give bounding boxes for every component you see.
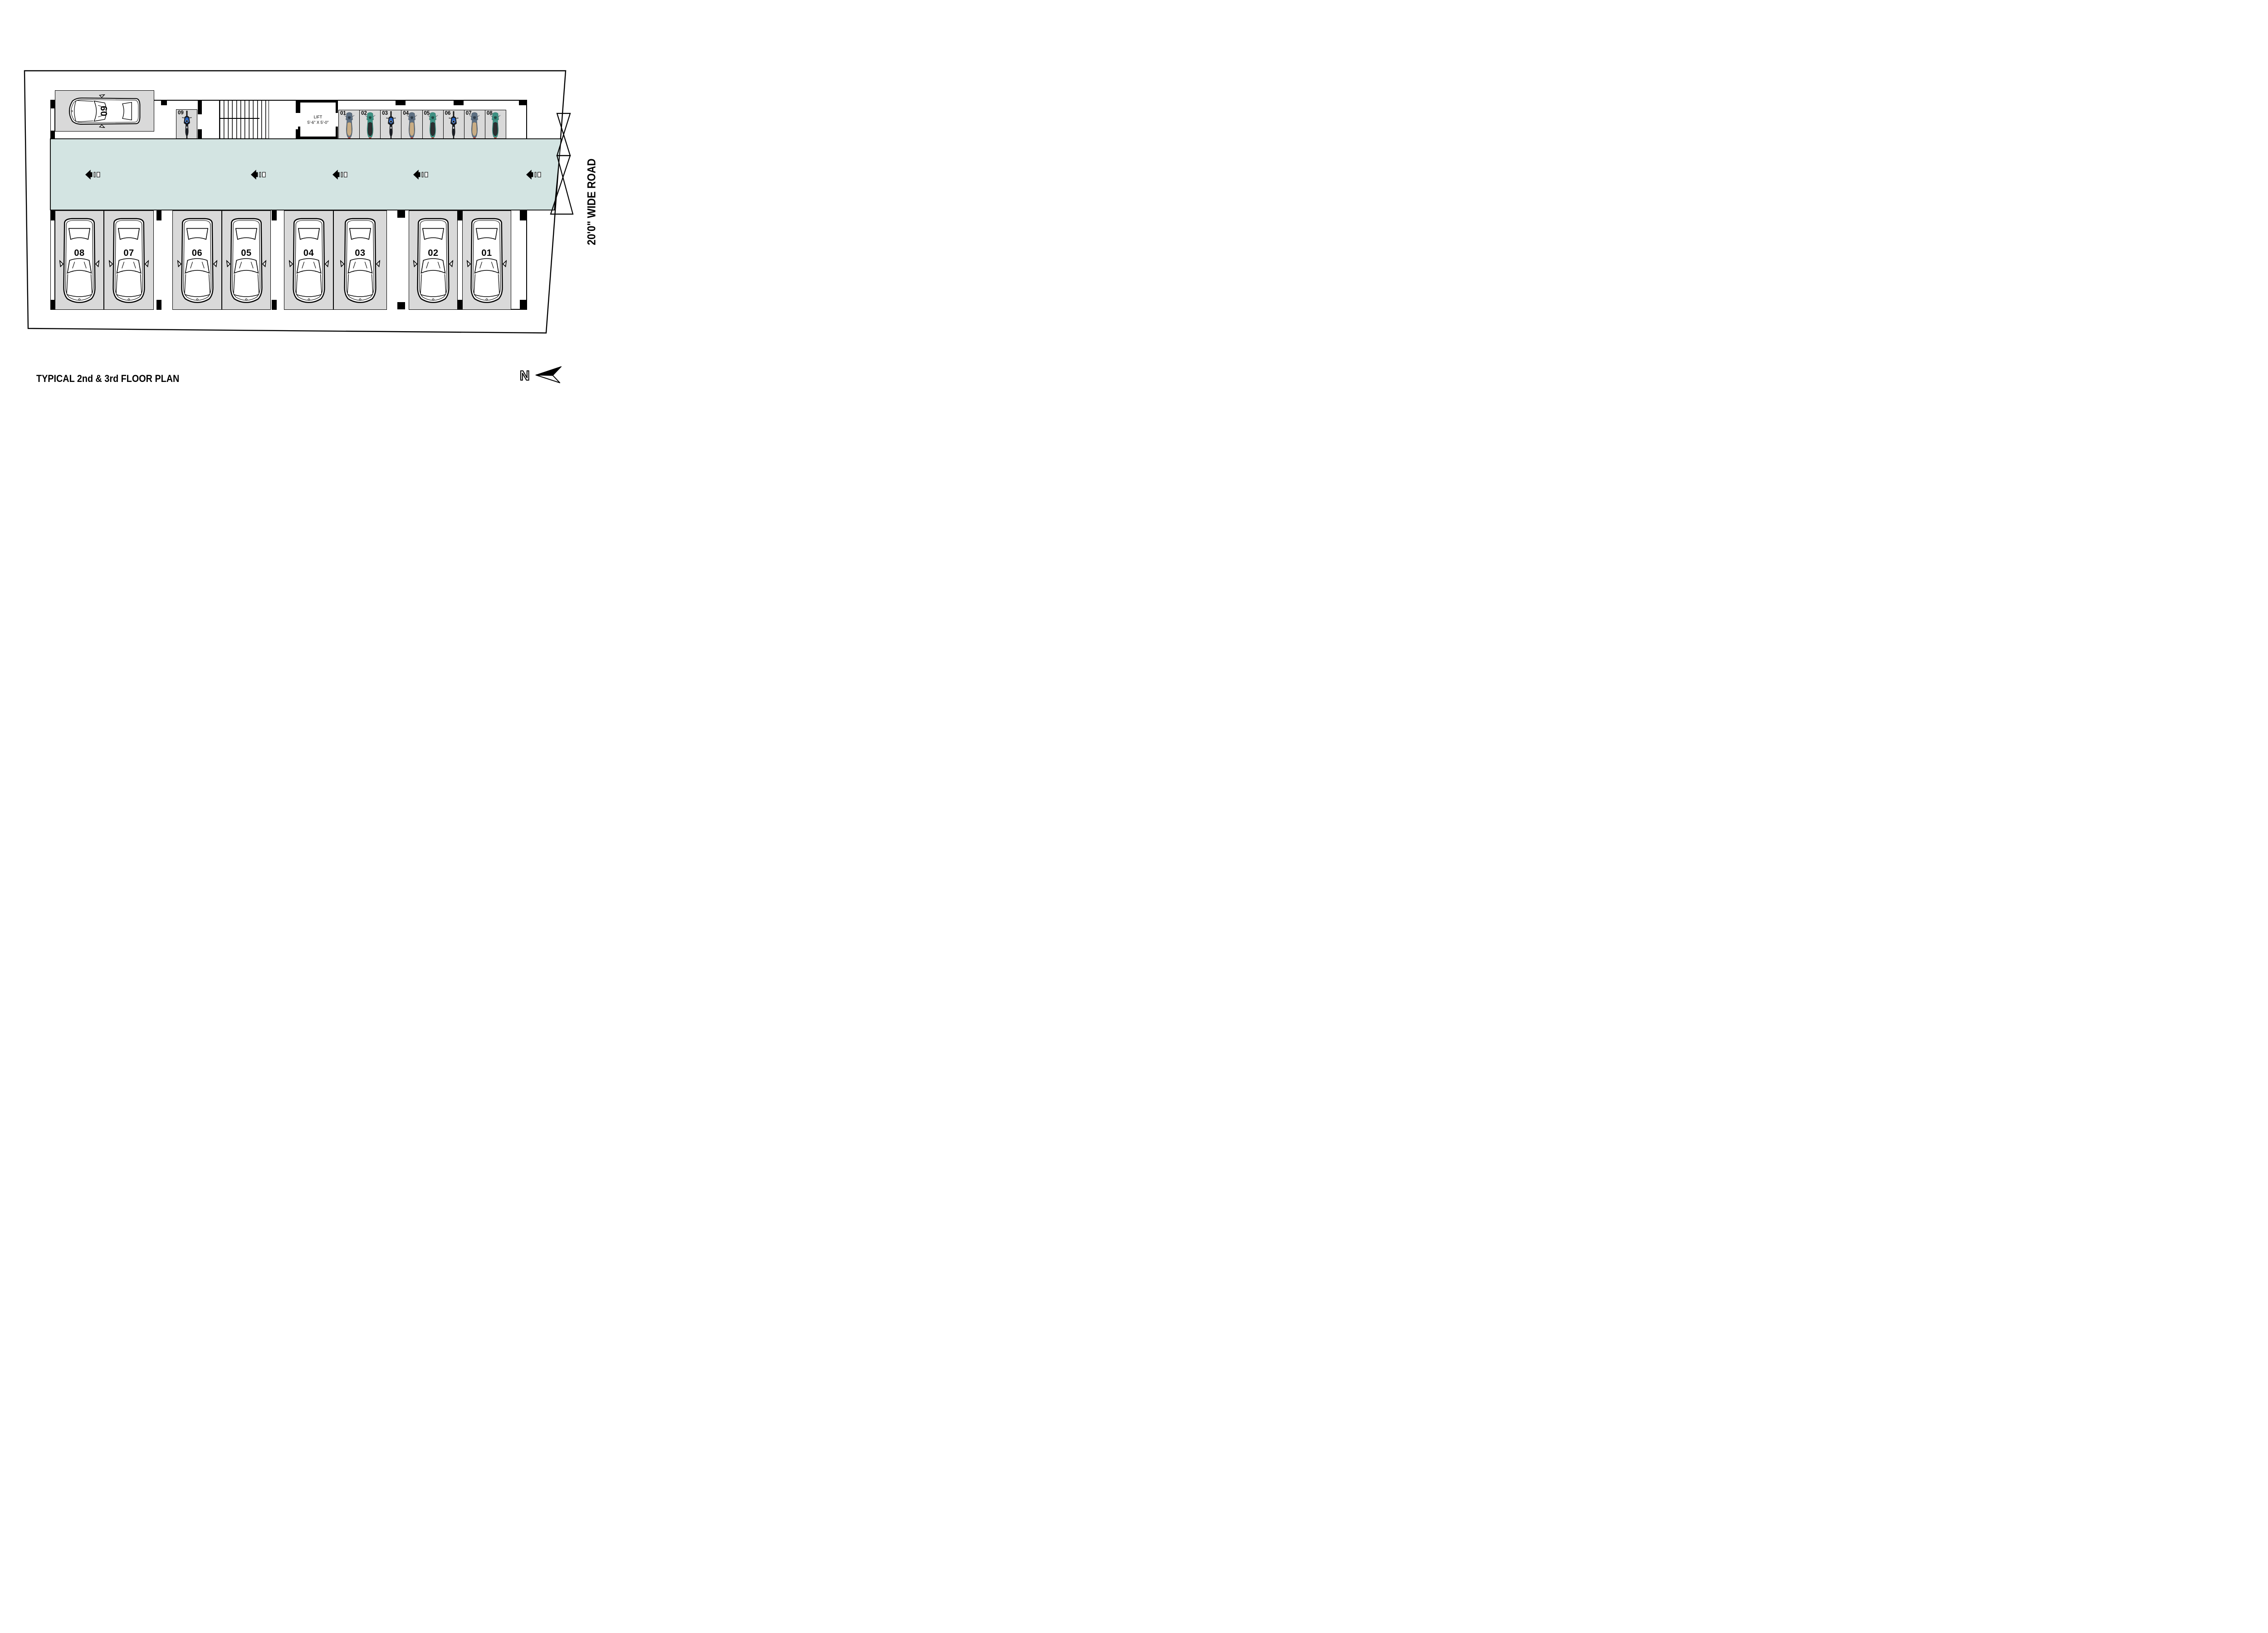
bike-stall-07: 07	[464, 110, 485, 138]
car-stall-number: 03	[334, 248, 386, 259]
structural-column	[156, 210, 161, 220]
structural-column	[50, 131, 55, 139]
bike-stall-02: 02	[359, 110, 380, 138]
structural-column	[396, 100, 406, 105]
stair-left-wall	[198, 129, 202, 139]
structural-column	[161, 100, 167, 105]
stair-landing-line	[220, 118, 259, 119]
bike-stall-04: 04	[401, 110, 422, 138]
structural-column	[50, 300, 55, 310]
car-stall-02: 02	[409, 210, 458, 310]
page-title: TYPICAL 2nd & 3rd FLOOR PLAN	[36, 373, 179, 385]
staircase	[219, 100, 269, 139]
bike-stall-05: 05	[422, 110, 443, 138]
structural-column	[519, 100, 527, 105]
left-direction-arrow-icon	[332, 169, 351, 180]
structural-column	[520, 300, 527, 310]
structural-column	[458, 210, 462, 220]
car-stall-number: 08	[55, 248, 103, 259]
car-top-icon	[177, 214, 217, 307]
car-stall-number: 05	[222, 248, 270, 259]
bike-stall-number: 08	[487, 111, 493, 116]
left-direction-arrow-icon	[526, 169, 545, 180]
structural-column	[397, 302, 405, 309]
lift-label: LIFT	[314, 115, 323, 119]
site-plan-linework	[0, 0, 612, 408]
lift-cabin: LIFT 5'-6" X 5'-0"	[300, 103, 336, 137]
bike-stall-number: 04	[403, 111, 409, 116]
structural-column	[454, 100, 464, 105]
car-stall-05: 05	[222, 210, 271, 310]
bike-stall-03: 03	[380, 110, 401, 138]
bike-stall-number: 05	[424, 111, 430, 116]
bike-stall-01: 01	[339, 110, 359, 138]
car-stall-09: 09	[55, 90, 154, 132]
structural-column	[520, 210, 527, 220]
north-arrow-icon	[536, 367, 562, 383]
car-top-icon	[289, 214, 329, 307]
lift-shaft: LIFT 5'-6" X 5'-0"	[298, 100, 338, 139]
bike-stall-number: 07	[466, 111, 472, 116]
structural-column	[272, 300, 277, 310]
structural-column	[397, 210, 405, 218]
driveway-surface	[50, 139, 561, 210]
bike-stall-09: 09	[176, 109, 197, 139]
bike-stall-number: 03	[382, 111, 388, 116]
car-stall-number: 01	[463, 248, 511, 259]
car-top-icon	[467, 214, 507, 307]
car-stall-number: 07	[104, 248, 153, 259]
bike-stall-number: 02	[361, 111, 367, 116]
left-direction-arrow-icon	[250, 169, 269, 180]
structural-column	[272, 210, 277, 220]
stair-left-wall	[198, 100, 202, 114]
structural-column	[458, 300, 462, 310]
north-letter: N	[520, 368, 530, 384]
car-top-icon	[59, 214, 99, 307]
car-stall-number: 04	[284, 248, 333, 259]
left-direction-arrow-icon	[85, 169, 104, 180]
bike-stall-number: 09	[178, 110, 184, 116]
car-stall-03: 03	[333, 210, 387, 310]
structural-column	[50, 210, 55, 220]
car-top-icon	[109, 214, 149, 307]
car-stall-06: 06	[172, 210, 222, 310]
car-stall-number: 06	[173, 248, 221, 259]
car-stall-08: 08	[55, 210, 104, 310]
lift-dimensions: 5'-6" X 5'-0"	[308, 120, 329, 125]
right-wall-lower	[526, 210, 527, 310]
structural-column	[50, 100, 55, 108]
car-stall-04: 04	[284, 210, 333, 310]
car-stall-number: 09	[99, 62, 110, 160]
bike-parking-row: 01 02 03 04 05 06 07 08	[338, 110, 506, 139]
car-stall-07: 07	[104, 210, 154, 310]
bike-stall-06: 06	[443, 110, 464, 138]
structural-column	[156, 300, 161, 310]
bike-stall-08: 08	[485, 110, 506, 138]
road-label: 20'0" WIDE ROAD	[586, 158, 599, 245]
car-stall-01: 01	[462, 210, 511, 310]
bike-stall-number: 06	[445, 111, 451, 116]
bike-stall-number: 01	[340, 111, 346, 116]
floor-plan-canvas: LIFT 5'-6" X 5'-0" 09 09 01 02 03 04 05 …	[0, 0, 612, 408]
car-top-icon	[413, 214, 453, 307]
car-top-icon	[340, 214, 380, 307]
car-top-icon	[226, 214, 266, 307]
left-wall-lower	[50, 210, 55, 310]
car-stall-number: 02	[409, 248, 457, 259]
left-direction-arrow-icon	[413, 169, 432, 180]
lift-door-gap	[298, 113, 300, 127]
right-wall-upper	[526, 100, 527, 139]
